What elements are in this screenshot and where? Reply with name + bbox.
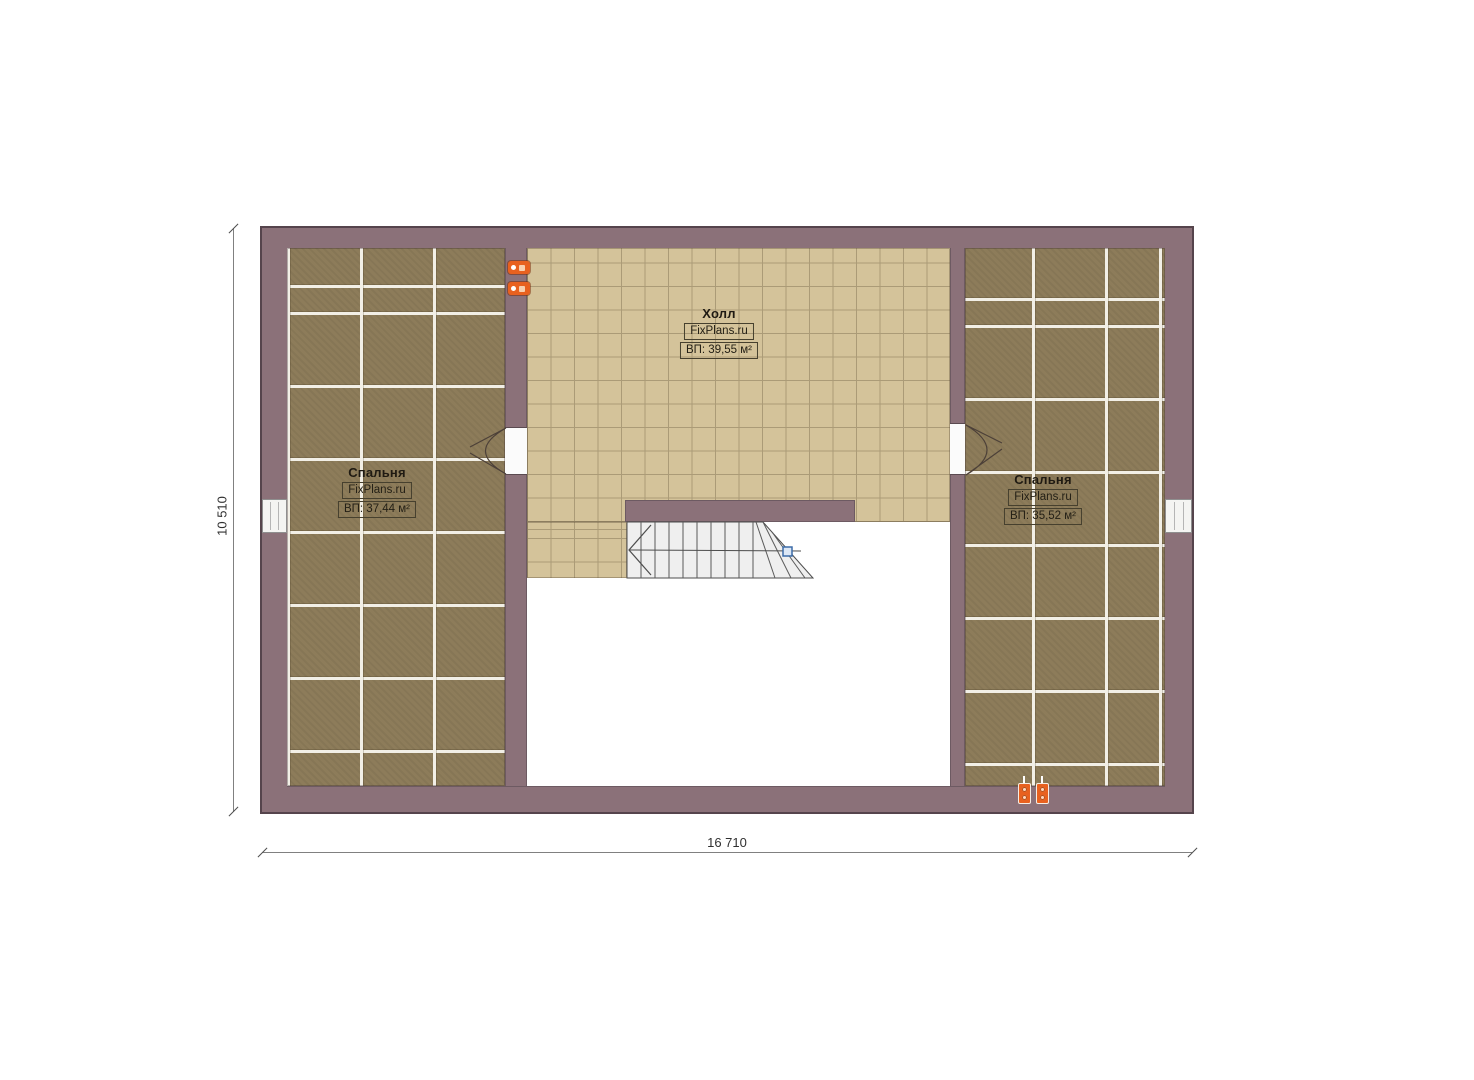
dimension-line-horizontal bbox=[262, 852, 1192, 853]
dimension-line-vertical bbox=[233, 228, 234, 812]
dimension-width-label: 16 710 bbox=[262, 835, 1192, 850]
socket-dot bbox=[511, 265, 516, 270]
window-right-pane bbox=[1174, 502, 1175, 530]
room-name: Холл bbox=[702, 306, 735, 321]
socket-icon bbox=[508, 261, 530, 274]
room-label-bedroom-left: Спальня FixPlans.ru ВП: 37,44 м² bbox=[338, 465, 416, 518]
brand-label: FixPlans.ru bbox=[684, 323, 754, 340]
wall-bedroomleft-hall bbox=[505, 248, 527, 786]
socket-dot bbox=[1022, 787, 1027, 792]
socket-dot bbox=[1040, 795, 1045, 800]
window-right bbox=[1165, 499, 1192, 533]
socket-icon bbox=[1036, 783, 1049, 804]
floor-plan-canvas: Спальня FixPlans.ru ВП: 37,44 м² Холл Fi… bbox=[0, 0, 1474, 1080]
socket-icon bbox=[1018, 783, 1031, 804]
room-label-hall: Холл FixPlans.ru ВП: 39,55 м² bbox=[680, 306, 758, 359]
window-left-pane bbox=[278, 502, 279, 530]
wall-top bbox=[262, 228, 1192, 248]
window-right-pane bbox=[1183, 502, 1184, 530]
socket-icon bbox=[508, 282, 530, 295]
area-label: ВП: 35,52 м² bbox=[1004, 508, 1082, 525]
room-name: Спальня bbox=[1014, 472, 1072, 487]
room-label-bedroom-right: Спальня FixPlans.ru ВП: 35,52 м² bbox=[1004, 472, 1082, 525]
room-name: Спальня bbox=[348, 465, 406, 480]
area-label: ВП: 37,44 м² bbox=[338, 501, 416, 518]
area-label: ВП: 39,55 м² bbox=[680, 342, 758, 359]
dimension-height-label: 10 510 bbox=[215, 496, 230, 536]
window-left bbox=[262, 499, 287, 533]
brand-label: FixPlans.ru bbox=[1008, 489, 1078, 506]
staircase bbox=[615, 515, 835, 590]
stair-selection-handle[interactable] bbox=[783, 547, 792, 556]
socket-dot bbox=[1022, 795, 1027, 800]
brand-label: FixPlans.ru bbox=[342, 482, 412, 499]
wall-hall-bedroomright bbox=[950, 248, 965, 786]
socket-dot bbox=[519, 286, 525, 292]
socket-dot bbox=[519, 265, 525, 271]
hall-floor-extension bbox=[527, 522, 627, 578]
socket-dot bbox=[1040, 787, 1045, 792]
wall-bottom bbox=[262, 786, 1192, 812]
hall-floor bbox=[527, 248, 950, 522]
socket-dot bbox=[511, 286, 516, 291]
door-left-swing bbox=[455, 420, 530, 482]
window-left-pane bbox=[270, 502, 271, 530]
